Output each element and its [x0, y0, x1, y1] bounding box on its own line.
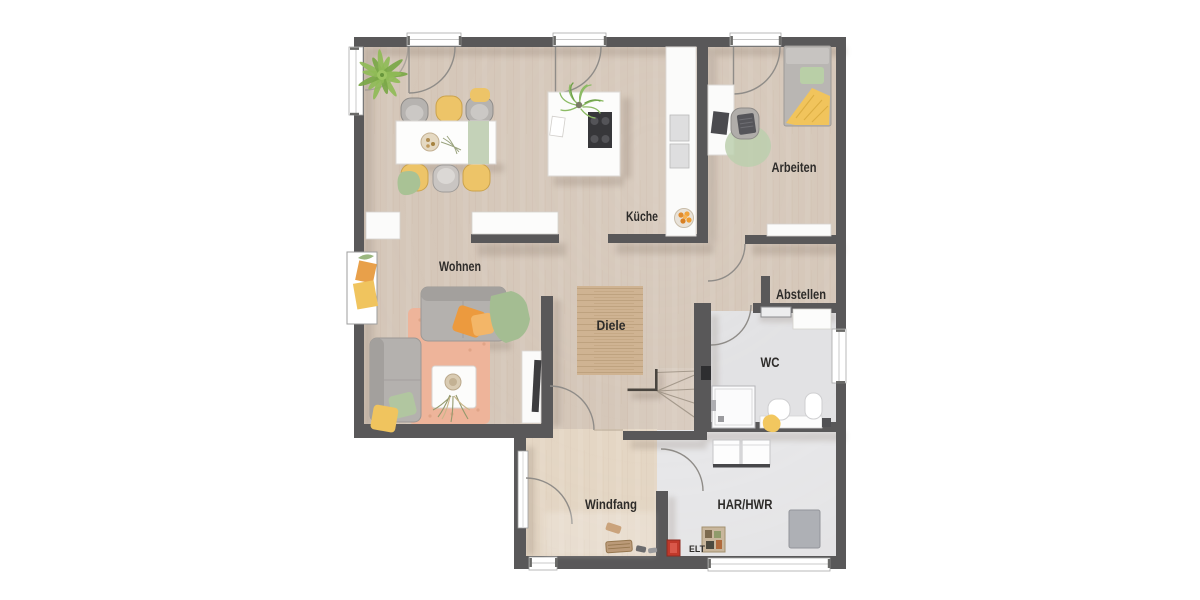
svg-text:Windfang: Windfang [585, 497, 637, 512]
svg-text:WC: WC [761, 355, 780, 370]
svg-text:Wohnen: Wohnen [439, 259, 481, 274]
svg-text:Diele: Diele [597, 318, 626, 333]
svg-text:Abstellen: Abstellen [776, 287, 826, 302]
svg-text:Arbeiten: Arbeiten [772, 160, 817, 175]
svg-text:ELT: ELT [689, 544, 705, 554]
svg-text:HAR/HWR: HAR/HWR [718, 497, 773, 512]
svg-text:Küche: Küche [626, 209, 658, 224]
